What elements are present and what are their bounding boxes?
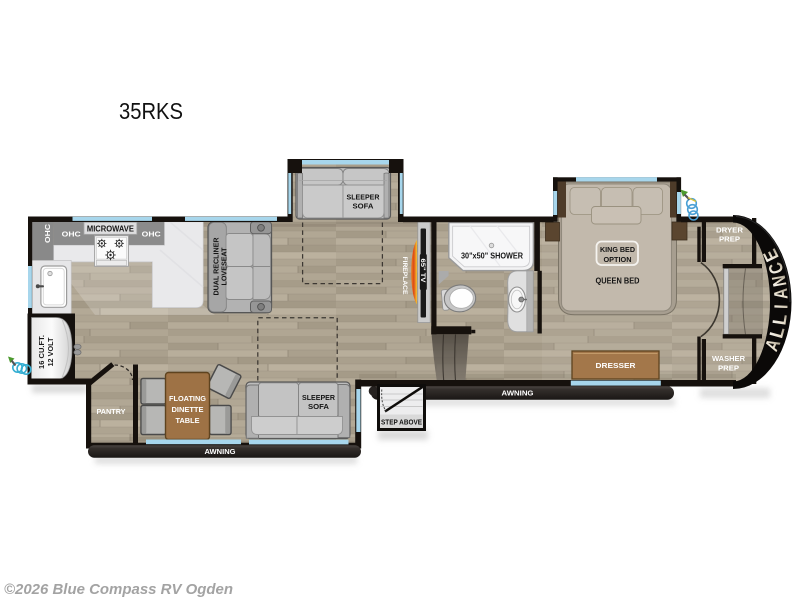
svg-text:DUAL RECLINER: DUAL RECLINER <box>214 237 221 295</box>
svg-text:DRESSER: DRESSER <box>596 361 637 370</box>
svg-text:KING BED: KING BED <box>600 245 636 254</box>
svg-text:TABLE: TABLE <box>176 416 200 425</box>
svg-text:PREP: PREP <box>719 235 740 244</box>
svg-text:DINETTE: DINETTE <box>172 405 204 414</box>
svg-text:FIREPLACE: FIREPLACE <box>401 257 408 296</box>
svg-text:65" TV: 65" TV <box>419 259 426 284</box>
svg-text:WASHER: WASHER <box>712 354 746 363</box>
svg-text:SLEEPER: SLEEPER <box>347 193 381 202</box>
svg-text:OHC: OHC <box>62 229 82 238</box>
svg-text:35RKS: 35RKS <box>119 98 183 124</box>
svg-text:©2026 Blue Compass RV Ogden: ©2026 Blue Compass RV Ogden <box>4 582 233 598</box>
svg-text:STEP ABOVE: STEP ABOVE <box>381 417 422 426</box>
svg-text:16 CU.FT.: 16 CU.FT. <box>37 335 46 369</box>
svg-text:OHC: OHC <box>43 223 52 243</box>
svg-text:PREP: PREP <box>718 364 739 373</box>
svg-text:I: I <box>771 304 792 309</box>
svg-text:OHC: OHC <box>142 229 162 238</box>
svg-text:DRYER: DRYER <box>716 226 744 235</box>
svg-text:SOFA: SOFA <box>353 202 374 211</box>
svg-text:PANTRY: PANTRY <box>97 407 126 416</box>
svg-text:SLEEPER: SLEEPER <box>302 393 336 402</box>
svg-text:12 VOLT: 12 VOLT <box>46 337 55 366</box>
svg-text:LOVESEAT: LOVESEAT <box>222 247 229 286</box>
svg-text:OPTION: OPTION <box>604 255 632 264</box>
svg-text:MICROWAVE: MICROWAVE <box>87 224 135 233</box>
svg-text:AWNING: AWNING <box>205 447 236 456</box>
svg-text:FLOATING: FLOATING <box>169 394 206 403</box>
svg-text:30"x50" SHOWER: 30"x50" SHOWER <box>461 252 523 261</box>
svg-text:A: A <box>771 287 793 300</box>
svg-text:QUEEN BED: QUEEN BED <box>596 277 640 286</box>
svg-text:SOFA: SOFA <box>308 402 329 411</box>
svg-text:AWNING: AWNING <box>502 389 534 398</box>
